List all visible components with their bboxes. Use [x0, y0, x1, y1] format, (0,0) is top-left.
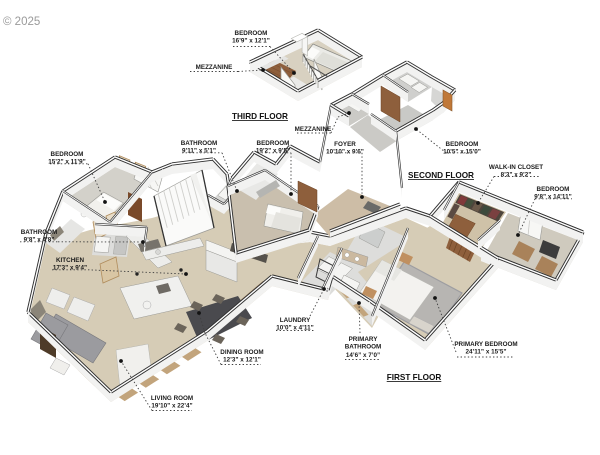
svg-text:BEDROOM: BEDROOM	[51, 151, 84, 158]
svg-text:DINING ROOM: DINING ROOM	[220, 349, 263, 356]
svg-text:PRIMARY: PRIMARY	[349, 336, 379, 343]
svg-text:MEZZANINE: MEZZANINE	[196, 64, 233, 71]
svg-text:BATHROOM: BATHROOM	[21, 229, 58, 236]
svg-text:PRIMARY BEDROOM: PRIMARY BEDROOM	[454, 341, 517, 348]
svg-text:19’10” x 22’4”: 19’10” x 22’4”	[151, 403, 192, 410]
svg-text:LIVING ROOM: LIVING ROOM	[151, 395, 193, 402]
svg-text:© 2025: © 2025	[3, 16, 40, 28]
svg-text:8’3” x 9’2”: 8’3” x 9’2”	[501, 172, 532, 179]
svg-text:17’3” x 9’4”: 17’3” x 9’4”	[53, 265, 87, 272]
svg-text:KITCHEN: KITCHEN	[56, 257, 84, 264]
svg-text:FOYER: FOYER	[334, 141, 356, 148]
svg-text:BATHROOM: BATHROOM	[181, 140, 218, 147]
svg-text:BEDROOM: BEDROOM	[235, 30, 268, 37]
svg-text:THIRD FLOOR: THIRD FLOOR	[232, 112, 288, 121]
svg-text:MEZZANINE: MEZZANINE	[295, 126, 332, 133]
svg-text:FIRST FLOOR: FIRST FLOOR	[387, 373, 442, 382]
svg-text:9’11” x 5’1”: 9’11” x 5’1”	[182, 148, 216, 155]
svg-text:9’8” x 4’8”: 9’8” x 4’8”	[24, 237, 55, 244]
svg-text:10’10” x 9’6”: 10’10” x 9’6”	[326, 149, 364, 156]
svg-text:12’3” x 12’1”: 12’3” x 12’1”	[223, 357, 261, 364]
svg-text:9’8” x 14’11”: 9’8” x 14’11”	[534, 194, 571, 201]
svg-text:BATHROOM: BATHROOM	[345, 344, 382, 351]
svg-text:14’6” x 7’0”: 14’6” x 7’0”	[346, 352, 380, 359]
svg-text:15’2” x 11’9”: 15’2” x 11’9”	[48, 159, 85, 166]
svg-text:SECOND FLOOR: SECOND FLOOR	[408, 171, 474, 180]
svg-text:BEDROOM: BEDROOM	[446, 141, 479, 148]
svg-text:24’11” x 15’5”: 24’11” x 15’5”	[466, 349, 507, 356]
svg-text:LAUNDRY: LAUNDRY	[280, 317, 311, 324]
svg-text:16’9” x 12’1”: 16’9” x 12’1”	[232, 38, 270, 45]
svg-text:BEDROOM: BEDROOM	[257, 140, 290, 147]
svg-text:10’5” x 15’0”: 10’5” x 15’0”	[443, 149, 481, 156]
svg-text:WALK-IN CLOSET: WALK-IN CLOSET	[489, 164, 543, 171]
svg-text:19’2” x 9’5”: 19’2” x 9’5”	[256, 148, 290, 155]
svg-text:BEDROOM: BEDROOM	[537, 186, 570, 193]
